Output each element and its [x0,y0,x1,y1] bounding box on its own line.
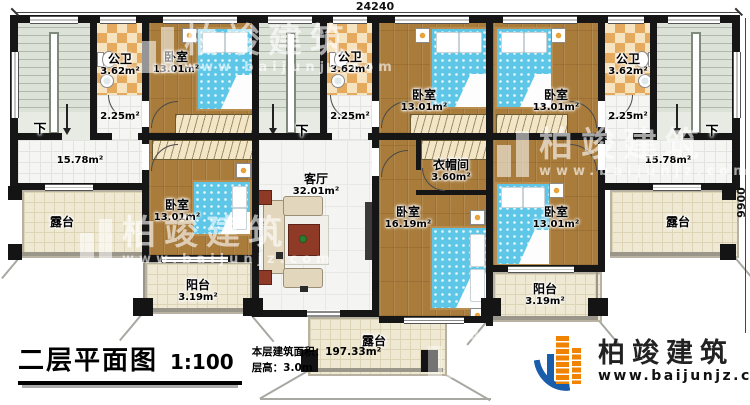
stair-down-label: 下 [295,124,308,139]
down-text: 下 [33,122,46,137]
sofa-icon [263,200,285,274]
room-area: 13.01m² [401,102,447,114]
bed-pillow [501,187,523,208]
room-name: 卧室 [401,88,447,102]
room-label-lobby1: 15.78m² [57,155,103,167]
window [30,16,78,24]
sliding-door-line [307,311,340,313]
bed-icon [196,27,254,111]
corner-post [243,298,263,316]
room-area: 3.19m² [525,296,564,308]
balcony-door-window [162,256,228,263]
window [45,184,93,191]
company-website: www.baijunjz.com [598,368,750,384]
stair-direction-arrow [66,104,68,128]
room-label-balcony1: 阳台 3.19m² [178,278,217,304]
room-label-cloak: 衣帽间 3.60m² [431,158,470,184]
balcony-door-window [508,266,574,273]
room-label-hall3: 2.25m² [608,111,647,123]
room-area: 2.25m² [608,111,647,123]
window [333,16,367,24]
stair-direction-arrow [676,104,678,128]
room-area: 3.62m² [608,66,647,78]
logo-orange-bar [556,336,569,384]
stair-rail [691,32,701,134]
room-label-bath3: 公卫 3.62m² [608,52,647,78]
tv-icon [365,202,372,260]
corner-post [720,244,736,260]
window [653,184,701,191]
eave-outline [442,372,490,401]
floor-area-text: 本层建筑面积：197.33m² [252,344,382,360]
room-area: 15.78m² [645,155,691,167]
room-name: 卧室 [154,198,200,212]
wall-segment [486,133,607,140]
plan-info: 本层建筑面积：197.33m² 层高：3.0m [252,340,382,377]
room-label-terrace-left: 露台 [50,215,74,229]
wall-segment [598,15,605,101]
room-label-bed4: 卧室 13.01m² [154,198,200,224]
room-name: 公卫 [330,50,369,64]
bed-pillow [470,234,485,266]
room-name: 卧室 [385,205,431,219]
window [608,16,644,24]
side-table-icon [257,270,272,285]
room-label-bed2: 卧室 13.01m² [401,88,447,114]
room-area: 3.60m² [431,172,470,184]
plant-icon [299,235,307,243]
room-area: 3.19m² [178,292,217,304]
company-name: 柏竣建筑 [598,340,750,368]
bed-icon [192,180,252,236]
bed-pillow [202,32,225,53]
room-label-bed1: 卧室 13.01m² [153,50,199,76]
corner-post [588,298,608,316]
cloakroom-wardrobe-icon [421,140,488,160]
wall-segment [633,133,657,140]
room-label-living: 客厅 32.01m² [293,172,339,198]
room-area: 13.01m² [533,219,579,231]
corner-post [8,186,22,200]
bed-sheet [497,230,549,264]
room-area: 13.01m² [154,212,200,224]
room-area: 15.78m² [57,155,103,167]
window [503,16,577,24]
room-label-lobby2: 15.78m² [645,155,691,167]
room-name: 露台 [666,215,690,229]
stair-arrow-head [673,128,681,135]
room-area: 2.25m² [330,111,369,123]
balcony-rail [143,308,252,312]
side-table-icon [257,190,272,205]
wall-segment [486,15,493,133]
wardrobe-icon [496,114,568,135]
stair-rail [286,32,296,134]
wall-segment [252,15,259,310]
wardrobe-icon [410,114,488,135]
nightstand-icon [415,28,430,43]
room-label-balcony2: 阳台 3.19m² [525,282,564,308]
wall-segment [416,140,421,170]
bed-sheet [198,75,252,109]
stair-direction-arrow [272,104,274,128]
wall-segment [149,133,259,140]
sliding-door-line [307,315,340,317]
bed-pillow [459,32,482,53]
terrace-left-floor [22,190,146,258]
nightstand-icon [549,183,564,198]
wall-segment [90,133,112,140]
window [668,16,720,24]
nightstand-icon [236,163,251,178]
window [100,16,136,24]
room-name: 卧室 [153,50,199,64]
bed-pillow [524,32,547,53]
bed-pillow [501,32,524,53]
room-label-bed5: 卧室 16.19m² [385,205,431,231]
room-area: 13.01m² [153,64,199,76]
room-label-bed3: 卧室 13.01m² [533,88,579,114]
room-name: 阳台 [525,282,564,296]
bed-pillow [232,186,247,208]
room-name: 露台 [50,215,74,229]
room-area: 3.62m² [330,64,369,76]
room-name: 卧室 [533,205,579,219]
floor-plan-canvas: 公卫 3.62m² 公卫 3.62m² 公卫 3.62m² 2.25m² 2.2… [0,0,750,405]
stair-rail [49,32,59,134]
window [404,317,464,324]
stair-down-label: 下 [33,122,46,137]
wall-segment [598,170,605,265]
nightstand-icon [470,210,485,225]
company-logo-icon [538,334,588,390]
floor-height-text: 层高：3.0m [252,360,382,376]
room-area: 3.62m² [100,66,139,78]
down-text: 下 [295,124,308,139]
terrace-rail [22,252,142,256]
company-logo-text: 柏竣建筑 www.baijunjz.com [598,340,750,384]
wall-segment [650,15,657,140]
room-label-bath1: 公卫 3.62m² [100,52,139,78]
room-label-terrace-right: 露台 [666,215,690,229]
nightstand-icon [182,28,197,43]
corner-post [133,298,153,316]
watermark-icon-bar [447,332,460,378]
window [395,16,469,24]
wardrobe-icon [175,114,254,135]
plan-scale: 1:100 [170,350,234,374]
terrace-rail [610,252,735,256]
bed-pillow [470,269,485,301]
dimension-line [15,12,740,13]
room-name: 公卫 [608,52,647,66]
window [11,52,19,118]
room-label-bed6: 卧室 13.01m² [533,205,579,231]
bed-pillow [232,208,247,230]
room-name: 卧室 [533,88,579,102]
room-name: 公卫 [100,52,139,66]
wall-segment [368,133,486,140]
room-name: 阳台 [178,278,217,292]
nightstand-icon [551,28,566,43]
sink-icon [331,74,345,88]
room-label-bath2: 公卫 3.62m² [330,50,369,76]
room-area: 16.19m² [385,219,431,231]
room-area: 13.01m² [533,102,579,114]
title-block: 二层平面图 1:100 本层建筑面积：197.33m² 层高：3.0m [18,340,381,385]
wall-segment [320,15,327,140]
title-underline-group: 二层平面图 1:100 [18,340,242,385]
bed-pillow [225,32,248,53]
wall-segment [142,15,149,101]
eave-outline [260,398,491,400]
room-area: 2.25m² [100,111,139,123]
plan-title: 二层平面图 [18,340,158,377]
right-dimension: 9900 [735,187,748,218]
decor-item [300,286,308,292]
room-label-hall2: 2.25m² [330,111,369,123]
room-name: 衣帽间 [431,158,470,172]
room-label-hall1: 2.25m² [100,111,139,123]
dimension-line [745,18,746,333]
corner-post [8,244,22,260]
window [733,52,741,118]
company-logo: 柏竣建筑 www.baijunjz.com [538,334,750,390]
corner-post [481,298,501,316]
wall-segment [372,15,379,101]
bed-pillow [436,32,459,53]
sofa-icon [283,196,323,216]
room-area: 32.01m² [293,186,339,198]
down-text: 下 [705,124,718,139]
wall-segment [138,133,149,140]
sofa-icon [283,268,323,288]
decor-item [276,252,283,259]
wall-segment [340,310,379,317]
eave-outline [734,256,750,280]
window [163,16,237,24]
balcony-rail [491,316,598,320]
logo-orange-bar [572,348,581,384]
stair-arrow-head [63,128,71,135]
wall-segment [372,176,379,317]
logo-blue-bar [547,354,554,384]
wall-segment [416,190,486,195]
room-name: 客厅 [293,172,339,186]
window [268,16,312,24]
corner-post [421,350,438,372]
wall-segment [90,15,97,140]
stair-down-label: 下 [705,124,718,139]
